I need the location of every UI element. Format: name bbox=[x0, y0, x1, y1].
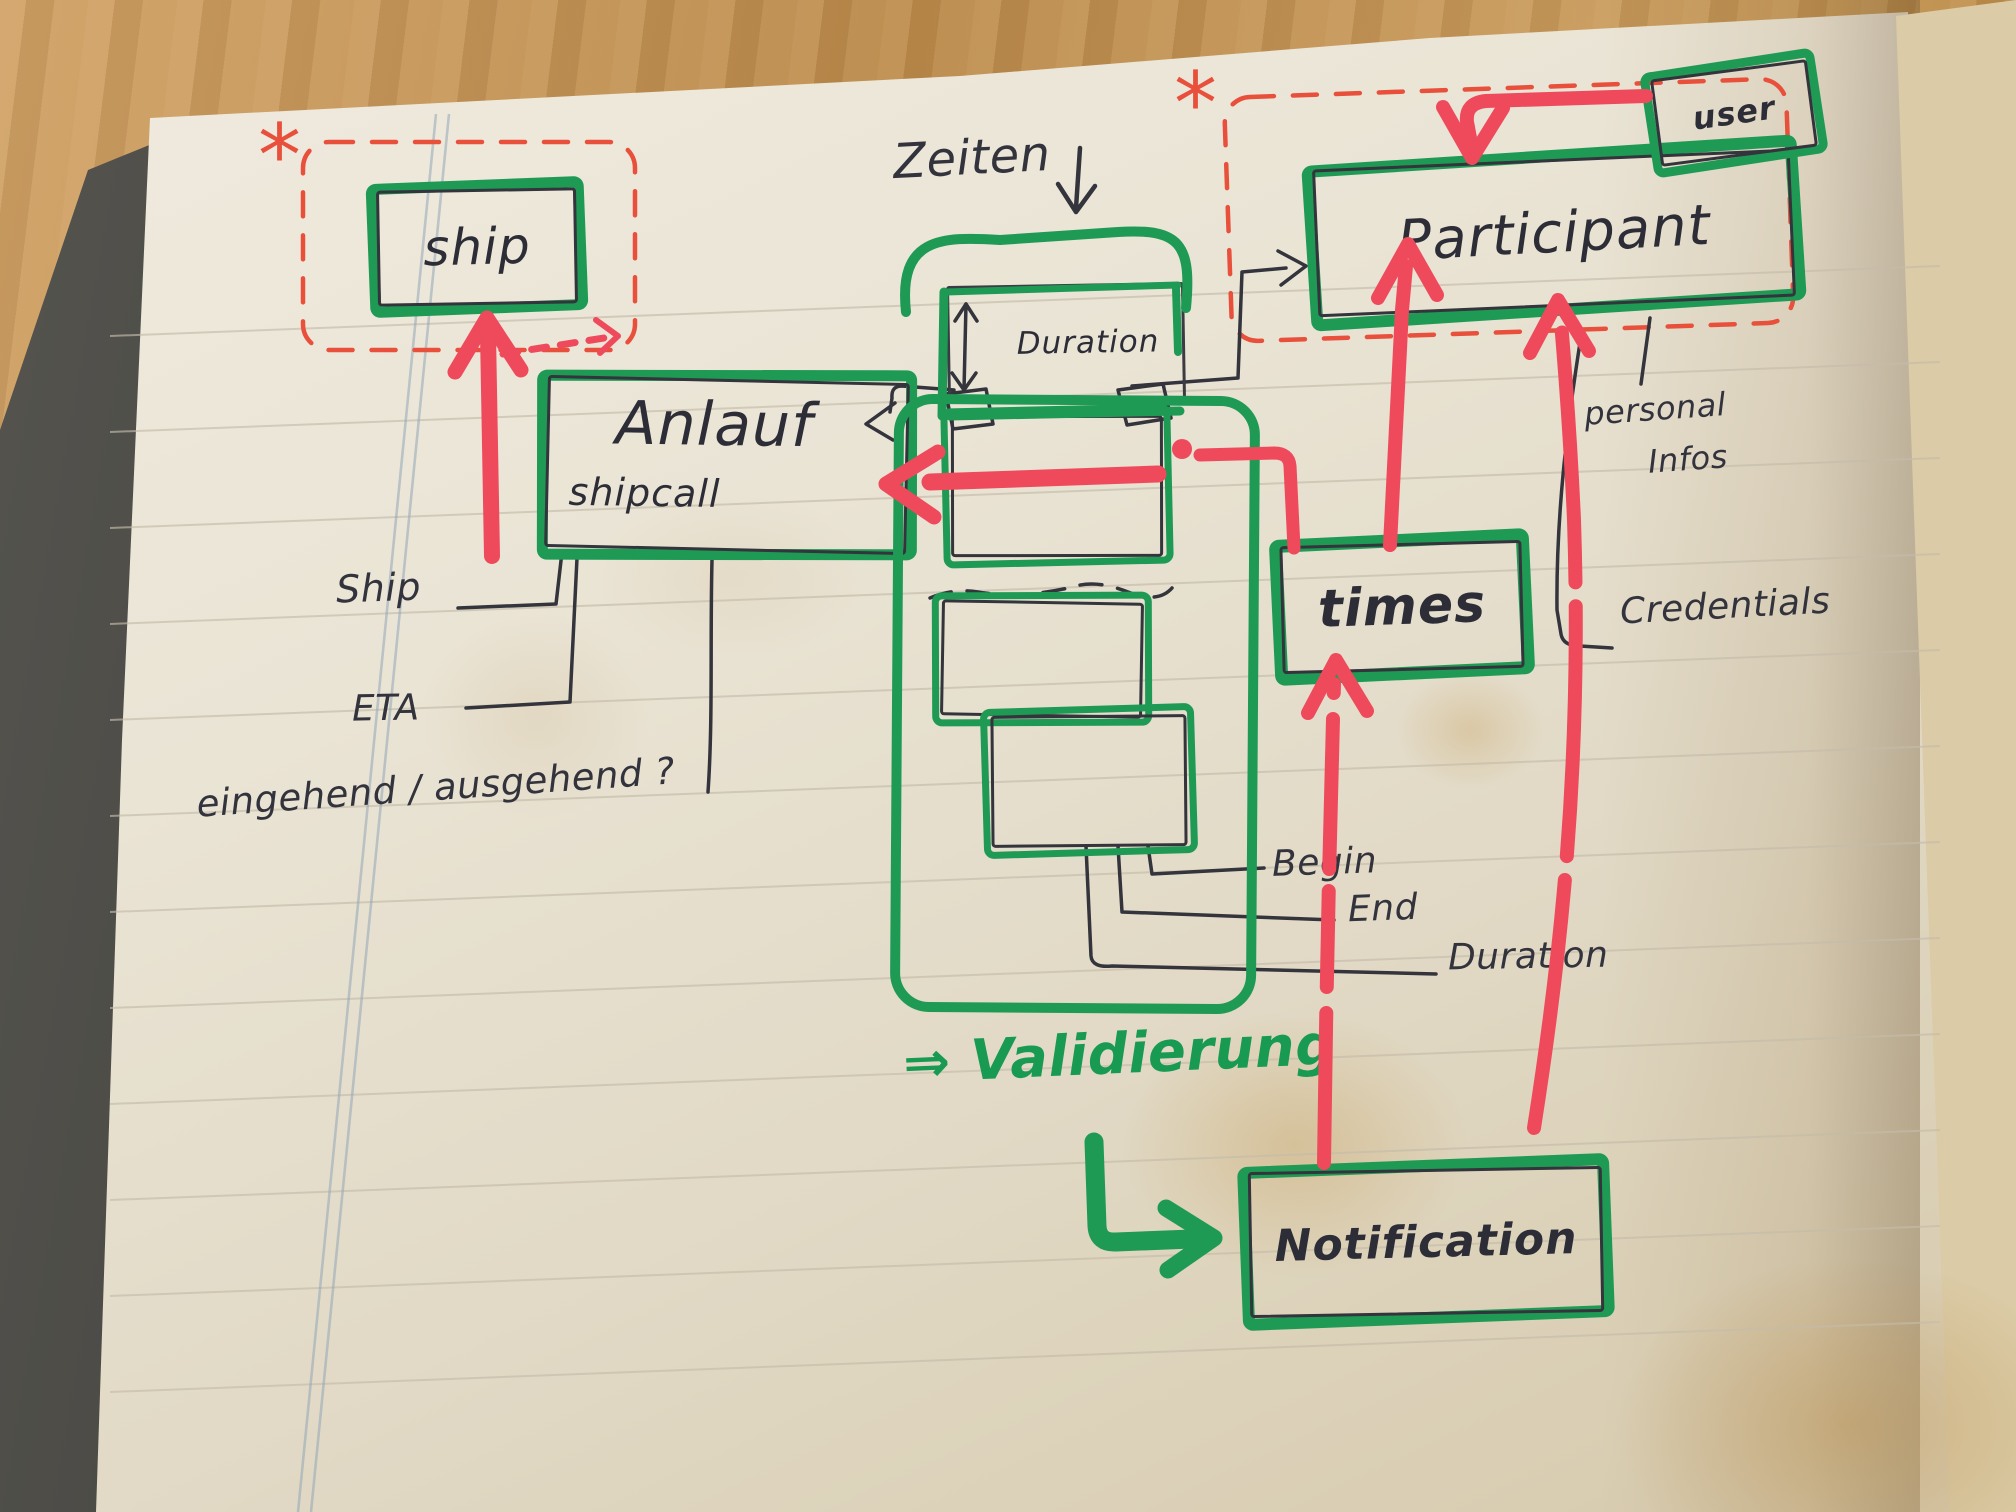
duration-box: Duration bbox=[946, 282, 1186, 404]
asterisk-participant: * bbox=[1174, 54, 1218, 154]
zeit-slot-box-2 bbox=[937, 597, 1146, 721]
participant-box: Participant bbox=[1308, 143, 1799, 322]
duration-box-label: Duration bbox=[949, 285, 1183, 401]
times-box-label: times bbox=[1276, 536, 1529, 679]
duration-attribute-label: Duration bbox=[1448, 935, 1609, 979]
user-box-label: user bbox=[1646, 55, 1821, 171]
shipcall-box-sublabel: shipcall bbox=[542, 373, 912, 556]
ship-attribute-label: Ship bbox=[335, 565, 421, 612]
times-box: times bbox=[1276, 536, 1529, 679]
begin-attribute-label: Begin bbox=[1271, 840, 1377, 885]
zeiten-annotation: Zeiten bbox=[892, 126, 1052, 190]
asterisk-ship: * bbox=[258, 106, 302, 206]
notification-box-label: Notification bbox=[1244, 1161, 1608, 1322]
ship-box: ship bbox=[372, 183, 581, 310]
eta-attribute-label: ETA bbox=[352, 687, 420, 729]
participant-box-label: Participant bbox=[1308, 143, 1799, 322]
notification-box: Notification bbox=[1244, 1161, 1608, 1322]
ship-box-label: ship bbox=[372, 183, 581, 310]
user-box: user bbox=[1646, 55, 1821, 171]
end-attribute-label: End bbox=[1347, 887, 1418, 930]
anlauf-shipcall-box: Anlauf shipcall bbox=[542, 373, 912, 556]
notebook-photo: * * ship Anlauf shipcall Duration times … bbox=[0, 0, 2016, 1512]
zeit-slot-box-1 bbox=[947, 411, 1167, 561]
zeit-slot-box-3 bbox=[987, 710, 1191, 852]
personal-infos-label-line2: Infos bbox=[1647, 437, 1729, 480]
